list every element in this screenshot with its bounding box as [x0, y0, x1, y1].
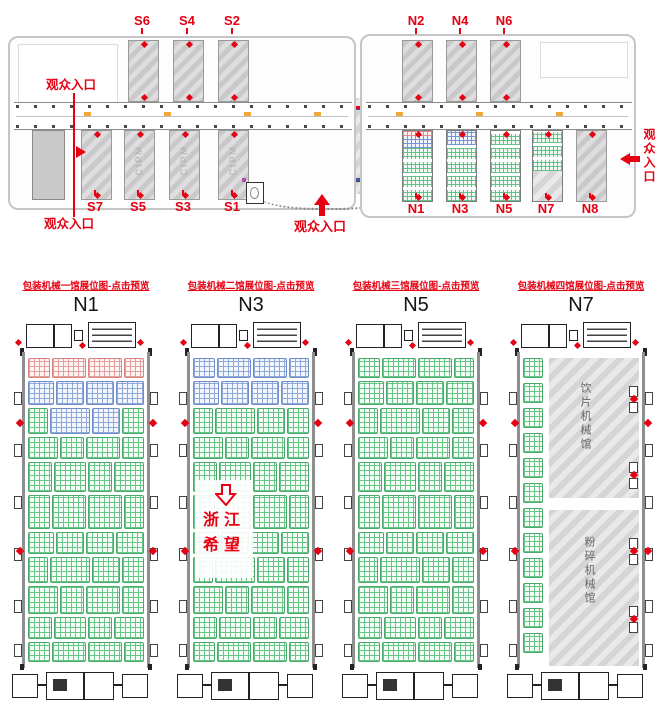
hall-label-S1: S1 — [224, 200, 240, 213]
service-box — [569, 330, 578, 341]
booth-block — [253, 462, 277, 492]
hall-N4 — [446, 40, 477, 102]
booth-block — [523, 358, 543, 378]
booth-block — [358, 642, 380, 662]
booth-block — [124, 642, 144, 662]
entrance-label-west-upper: 观众入口 — [46, 79, 96, 92]
booth-block — [124, 495, 144, 529]
booth-block — [452, 586, 474, 614]
north-concourse — [366, 102, 632, 130]
booth-block — [193, 358, 215, 378]
machine-room-detail — [587, 326, 627, 342]
label-pointer — [141, 28, 143, 34]
booth-block — [523, 583, 543, 603]
left-wall — [187, 352, 190, 668]
label-pointer — [231, 190, 233, 195]
hall-plan-N7: 包装机械四馆展位图-点击预览N7饮片机械馆粉碎机械馆 — [505, 278, 657, 702]
door-marker-icon — [186, 94, 193, 101]
entrance-hall — [376, 672, 444, 700]
booth-block — [193, 617, 217, 639]
room-block — [383, 679, 397, 691]
door-marker-icon — [141, 41, 148, 48]
booth-block — [225, 437, 249, 459]
hall-label-N5: N5 — [496, 202, 513, 215]
booth-block — [452, 437, 474, 459]
side-door — [344, 392, 352, 405]
booth-block — [253, 617, 277, 639]
door-marker-icon — [574, 342, 581, 349]
wall-post — [313, 664, 317, 670]
wall-post — [515, 664, 519, 670]
room-block — [218, 679, 232, 691]
wall-post — [478, 664, 482, 670]
hall-floorplan-N7: 饮片机械馆粉碎机械馆 — [505, 322, 657, 702]
side-door — [14, 496, 22, 509]
room-link — [38, 684, 46, 686]
hall-label-N4: N4 — [452, 14, 469, 27]
concourse-booth-accent — [556, 112, 563, 116]
door-marker-icon — [644, 419, 652, 427]
concourse-booth-accent — [476, 112, 483, 116]
left-wall — [352, 352, 355, 668]
booth-block — [217, 358, 251, 378]
side-door — [315, 600, 323, 613]
label-pointer — [503, 28, 505, 34]
hall-N5 — [490, 130, 521, 202]
room-link — [203, 684, 211, 686]
left-wall — [22, 352, 25, 668]
booth-block — [523, 558, 543, 578]
door-marker-icon — [137, 339, 144, 346]
side-door — [179, 600, 187, 613]
door-marker-icon — [149, 419, 157, 427]
booth-block — [122, 557, 144, 583]
booth-block — [358, 358, 380, 378]
side-door — [344, 644, 352, 657]
door-marker-icon — [314, 419, 322, 427]
booth-block — [54, 462, 86, 492]
booth-block — [60, 586, 84, 614]
wall-post — [148, 664, 152, 670]
exhibition-floorplan-page: CIPM C CIPMCIPMCIPMS6S4S2S7S5S3S1观众入口观众入… — [0, 0, 662, 707]
door-marker-icon — [459, 41, 466, 48]
exhibitor-annotation: 浙江希望 — [195, 508, 253, 558]
hall-link-N7[interactable]: 包装机械四馆展位图-点击预览 — [505, 278, 657, 292]
booth-block — [86, 586, 120, 614]
booth-block — [386, 532, 414, 554]
booth-block — [92, 557, 120, 583]
room-divider — [248, 673, 250, 699]
booth-strip-green — [447, 145, 476, 201]
side-door — [645, 444, 653, 457]
booth-block — [28, 408, 48, 434]
north-complex-outline — [360, 34, 636, 218]
machine-room — [418, 322, 466, 348]
hall-label-S4: S4 — [179, 14, 195, 27]
booth-block — [358, 495, 380, 529]
booth-block — [122, 586, 144, 614]
booth-block — [384, 462, 416, 492]
label-pointer — [589, 193, 591, 198]
booth-block — [28, 642, 50, 662]
machine-room — [253, 322, 301, 348]
booth-block — [221, 381, 249, 405]
booth-block — [523, 483, 543, 503]
stair-accent — [242, 178, 246, 182]
side-door — [509, 444, 517, 457]
booth-block — [390, 437, 414, 459]
hall-S5: CIPM — [124, 130, 155, 200]
hall-link-N5[interactable]: 包装机械三馆展位图-点击预览 — [340, 278, 492, 292]
booth-block — [418, 358, 452, 378]
booth-block — [122, 408, 144, 434]
side-door — [150, 496, 158, 509]
booth-block — [358, 408, 378, 434]
booth-block — [418, 495, 452, 529]
service-box — [239, 330, 248, 341]
side-door — [150, 600, 158, 613]
entrance-arrow-east-stem — [630, 156, 640, 162]
booth-block — [279, 462, 309, 492]
booth-block — [523, 508, 543, 528]
wall-post — [185, 664, 189, 670]
entrance-room — [177, 674, 203, 698]
label-pointer — [182, 190, 184, 195]
label-pointer — [503, 193, 505, 198]
booth-block — [358, 586, 388, 614]
booth-block — [253, 358, 287, 378]
booth-block — [446, 381, 474, 405]
booth-block — [418, 617, 442, 639]
booth-block — [380, 408, 420, 434]
booth-block — [289, 495, 309, 529]
down-arrow-hollow-icon — [215, 484, 237, 506]
side-door — [150, 392, 158, 405]
side-door — [645, 496, 653, 509]
entrance-label-center: 观众入口 — [294, 220, 346, 233]
entrance-room — [12, 674, 38, 698]
entrance-room — [287, 674, 313, 698]
entrance-room — [617, 674, 643, 698]
hall-label-N1: N1 — [408, 202, 425, 215]
booth-block — [257, 557, 285, 583]
label-pointer — [459, 193, 461, 198]
booth-block — [28, 617, 52, 639]
hall-S4 — [173, 40, 204, 102]
booth-block — [253, 495, 287, 529]
hall-floorplan-N5 — [340, 322, 492, 702]
hall-label-N8: N8 — [582, 202, 599, 215]
booth-block — [289, 642, 309, 662]
hall-N1 — [402, 130, 433, 202]
booth-block — [28, 532, 54, 554]
booth-field — [28, 358, 144, 666]
zone-label: 饮片机械馆 — [577, 382, 593, 452]
booth-block — [28, 586, 58, 614]
booth-block — [384, 617, 416, 639]
entrance-room — [507, 674, 533, 698]
booth-block — [287, 557, 309, 583]
booth-block — [225, 586, 249, 614]
booth-block — [60, 437, 84, 459]
hall-N8 — [576, 130, 607, 202]
room-link — [114, 684, 122, 686]
booth-block — [416, 586, 450, 614]
side-door — [480, 496, 488, 509]
booth-block — [116, 532, 144, 554]
hall-link-N3[interactable]: 包装机械二馆展位图-点击预览 — [175, 278, 327, 292]
booth-block — [454, 495, 474, 529]
booth-block — [444, 462, 474, 492]
side-door — [645, 600, 653, 613]
machine-room-detail — [257, 326, 297, 342]
booth-field: 浙江希望 — [193, 358, 309, 666]
stair-detail — [250, 187, 259, 199]
door-marker-icon — [186, 41, 193, 48]
booth-block — [88, 617, 112, 639]
door-marker-icon — [244, 342, 251, 349]
side-door — [14, 444, 22, 457]
door-marker-icon — [345, 339, 352, 346]
door-marker-icon — [15, 339, 22, 346]
hall-N3 — [446, 130, 477, 202]
hall-plan-N1: 包装机械一馆展位图-点击预览N1 — [10, 278, 162, 702]
hall-S2 — [218, 40, 249, 102]
booth-block — [52, 358, 86, 378]
service-room — [356, 324, 402, 348]
door-marker-icon — [503, 94, 510, 101]
entrance-label-west-lower: 观众入口 — [44, 218, 94, 231]
booth-block — [251, 586, 285, 614]
service-room — [521, 324, 567, 348]
booth-block — [114, 462, 144, 492]
booth-block — [28, 358, 50, 378]
booth-block — [523, 633, 543, 653]
side-door — [509, 600, 517, 613]
label-pointer — [415, 28, 417, 34]
door-marker-icon — [415, 94, 422, 101]
booth-block — [358, 437, 388, 459]
concourse-booth-accent — [396, 112, 403, 116]
entrance-arrow-center-stem — [319, 204, 325, 216]
hall-watermark: CIPM — [228, 145, 238, 176]
door-marker-icon — [503, 41, 510, 48]
concourse-booth-accent — [244, 112, 251, 116]
hall-S1: CIPM — [218, 130, 249, 200]
entrance-room — [342, 674, 368, 698]
booth-block — [382, 642, 416, 662]
side-door — [480, 644, 488, 657]
reserved-zone-upper: 饮片机械馆 — [549, 358, 639, 498]
label-pointer — [186, 28, 188, 34]
booth-block — [28, 557, 48, 583]
booth-block — [287, 437, 309, 459]
entrance-hall — [541, 672, 609, 700]
service-box — [404, 330, 413, 341]
machine-room-detail — [422, 326, 462, 342]
booth-block — [523, 433, 543, 453]
booth-block — [114, 617, 144, 639]
booth-block — [452, 557, 474, 583]
hall-title-N5: N5 — [340, 294, 492, 316]
side-door — [179, 644, 187, 657]
door-marker-icon — [231, 41, 238, 48]
hall-label-N3: N3 — [452, 202, 469, 215]
booth-block — [279, 617, 309, 639]
room-block — [53, 679, 67, 691]
concourse-booth-accent — [314, 112, 321, 116]
door-marker-icon — [467, 339, 474, 346]
hall-title-N1: N1 — [10, 294, 162, 316]
booth-block — [88, 495, 122, 529]
exhibitor-annotation-line: 希望 — [195, 533, 253, 558]
hall-label-N6: N6 — [496, 14, 513, 27]
booth-block — [116, 381, 144, 405]
hall-S7 — [81, 130, 112, 200]
west-service-hall — [32, 130, 65, 200]
booth-block — [281, 381, 309, 405]
entrance-arrow-west-icon — [76, 146, 86, 158]
machine-room — [88, 322, 136, 348]
booth-block — [193, 642, 215, 662]
booth-block — [193, 381, 219, 405]
hall-label-S7: S7 — [87, 200, 103, 213]
label-pointer — [137, 190, 139, 195]
booth-block — [358, 381, 384, 405]
door-marker-icon — [510, 339, 517, 346]
booth-block — [52, 495, 86, 529]
entrance-hall — [46, 672, 114, 700]
booth-block — [54, 617, 86, 639]
service-room — [191, 324, 237, 348]
side-door — [179, 392, 187, 405]
label-pointer — [94, 190, 96, 195]
label-pointer — [415, 193, 417, 198]
side-door — [645, 644, 653, 657]
booth-block — [50, 408, 90, 434]
booth-block — [358, 617, 382, 639]
door-marker-icon — [415, 41, 422, 48]
booth-block — [193, 437, 223, 459]
service-room — [26, 324, 72, 348]
hall-link-N1[interactable]: 包装机械一馆展位图-点击预览 — [10, 278, 162, 292]
wall-post — [350, 664, 354, 670]
booth-block — [219, 617, 251, 639]
booth-block — [217, 642, 251, 662]
booth-block — [92, 408, 120, 434]
booth-block — [50, 557, 90, 583]
hall-title-N7: N7 — [505, 294, 657, 316]
concourse-line — [368, 116, 628, 117]
door-marker-icon — [141, 94, 148, 101]
south-lobby-outline — [18, 44, 118, 106]
south-concourse — [14, 102, 352, 130]
room-divider — [413, 673, 415, 699]
side-door — [179, 496, 187, 509]
label-pointer — [231, 28, 233, 34]
booth-block — [422, 557, 450, 583]
entrance-room — [122, 674, 148, 698]
booth-block — [416, 437, 450, 459]
booth-block — [358, 462, 382, 492]
hall-label-S5: S5 — [130, 200, 146, 213]
booth-block — [281, 532, 309, 554]
side-door — [344, 444, 352, 457]
side-door — [480, 600, 488, 613]
room-block — [548, 679, 562, 691]
side-door — [480, 392, 488, 405]
door-marker-icon — [94, 131, 101, 138]
label-pointer — [545, 193, 547, 198]
booth-block — [86, 532, 114, 554]
room-link — [279, 684, 287, 686]
concourse-detail — [368, 105, 628, 108]
room-divider — [578, 673, 580, 699]
booth-block — [88, 358, 122, 378]
room-link — [609, 684, 617, 686]
exhibitor-annotation-line: 浙江 — [195, 508, 253, 533]
hall-label-S3: S3 — [175, 200, 191, 213]
hall-N6 — [490, 40, 521, 102]
room-divider — [83, 673, 85, 699]
concourse-detail — [16, 105, 348, 108]
side-door — [14, 644, 22, 657]
room-link — [368, 684, 376, 686]
booth-block — [418, 462, 442, 492]
booth-block — [52, 642, 86, 662]
hall-watermark: CIPM — [134, 145, 144, 176]
north-lobby-outline — [540, 42, 628, 78]
side-door — [344, 496, 352, 509]
booth-block — [28, 381, 54, 405]
side-door — [179, 444, 187, 457]
side-door — [480, 444, 488, 457]
booth-block — [523, 608, 543, 628]
door-marker-icon — [180, 339, 187, 346]
hall-label-N7: N7 — [538, 202, 555, 215]
side-door — [150, 444, 158, 457]
side-door — [14, 392, 22, 405]
booth-block — [56, 381, 84, 405]
door-marker-icon — [231, 94, 238, 101]
booth-block — [386, 381, 414, 405]
booth-block — [88, 462, 112, 492]
booth-block — [251, 532, 279, 554]
side-door — [315, 496, 323, 509]
left-wall — [517, 352, 520, 668]
booth-block — [416, 532, 444, 554]
hall-floorplan-N3: 浙江希望 — [175, 322, 327, 702]
entrance-room — [452, 674, 478, 698]
concourse-detail — [368, 125, 628, 128]
booth-block — [418, 642, 452, 662]
label-pointer — [459, 28, 461, 34]
booth-block — [28, 437, 58, 459]
concourse-booth-accent — [84, 112, 91, 116]
hall-label-S2: S2 — [224, 14, 240, 27]
booth-block — [253, 642, 287, 662]
booth-block — [124, 358, 144, 378]
booth-block — [28, 462, 52, 492]
booth-block — [446, 532, 474, 554]
site-overview-map: CIPM C CIPMCIPMCIPMS6S4S2S7S5S3S1观众入口观众入… — [0, 0, 662, 270]
booth-block — [289, 358, 309, 378]
door-marker-icon — [302, 339, 309, 346]
south-complex-outline: CIPMCIPMCIPM — [8, 36, 356, 210]
booth-strip-green — [491, 131, 520, 201]
machine-room-detail — [92, 326, 132, 342]
booth-block — [88, 642, 122, 662]
